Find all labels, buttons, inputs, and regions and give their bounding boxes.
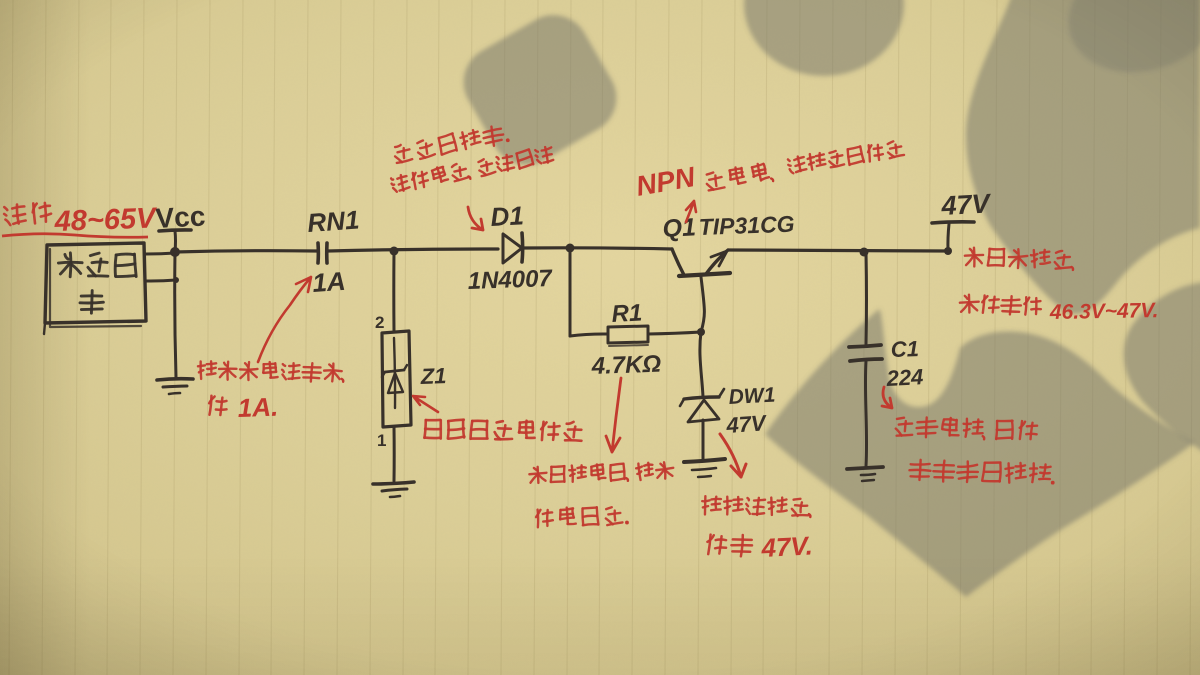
svg-text:D1: D1	[490, 200, 525, 232]
svg-text:47V: 47V	[725, 410, 769, 438]
svg-text:1A: 1A	[311, 266, 346, 298]
svg-text:Vcc: Vcc	[155, 200, 206, 234]
svg-text:1: 1	[377, 431, 386, 450]
svg-text:Q1: Q1	[662, 213, 697, 243]
svg-text:C1: C1	[890, 336, 919, 362]
svg-text:46.3V~47V.: 46.3V~47V.	[1049, 299, 1159, 324]
svg-text:48~65V: 48~65V	[53, 202, 159, 238]
svg-text:47V.: 47V.	[760, 530, 814, 563]
svg-text:1A.: 1A.	[237, 392, 278, 423]
svg-text:R1: R1	[611, 299, 643, 328]
svg-text:1N4007: 1N4007	[467, 265, 554, 295]
svg-text:47V: 47V	[940, 188, 993, 221]
svg-text:224: 224	[885, 364, 924, 391]
svg-text:2: 2	[375, 313, 384, 332]
svg-text:Z1: Z1	[419, 363, 447, 389]
svg-text:TIP31CG: TIP31CG	[698, 211, 795, 240]
svg-text:DW1: DW1	[728, 384, 776, 409]
svg-text:4.7KΩ: 4.7KΩ	[590, 351, 662, 380]
svg-text:RN1: RN1	[306, 204, 360, 238]
